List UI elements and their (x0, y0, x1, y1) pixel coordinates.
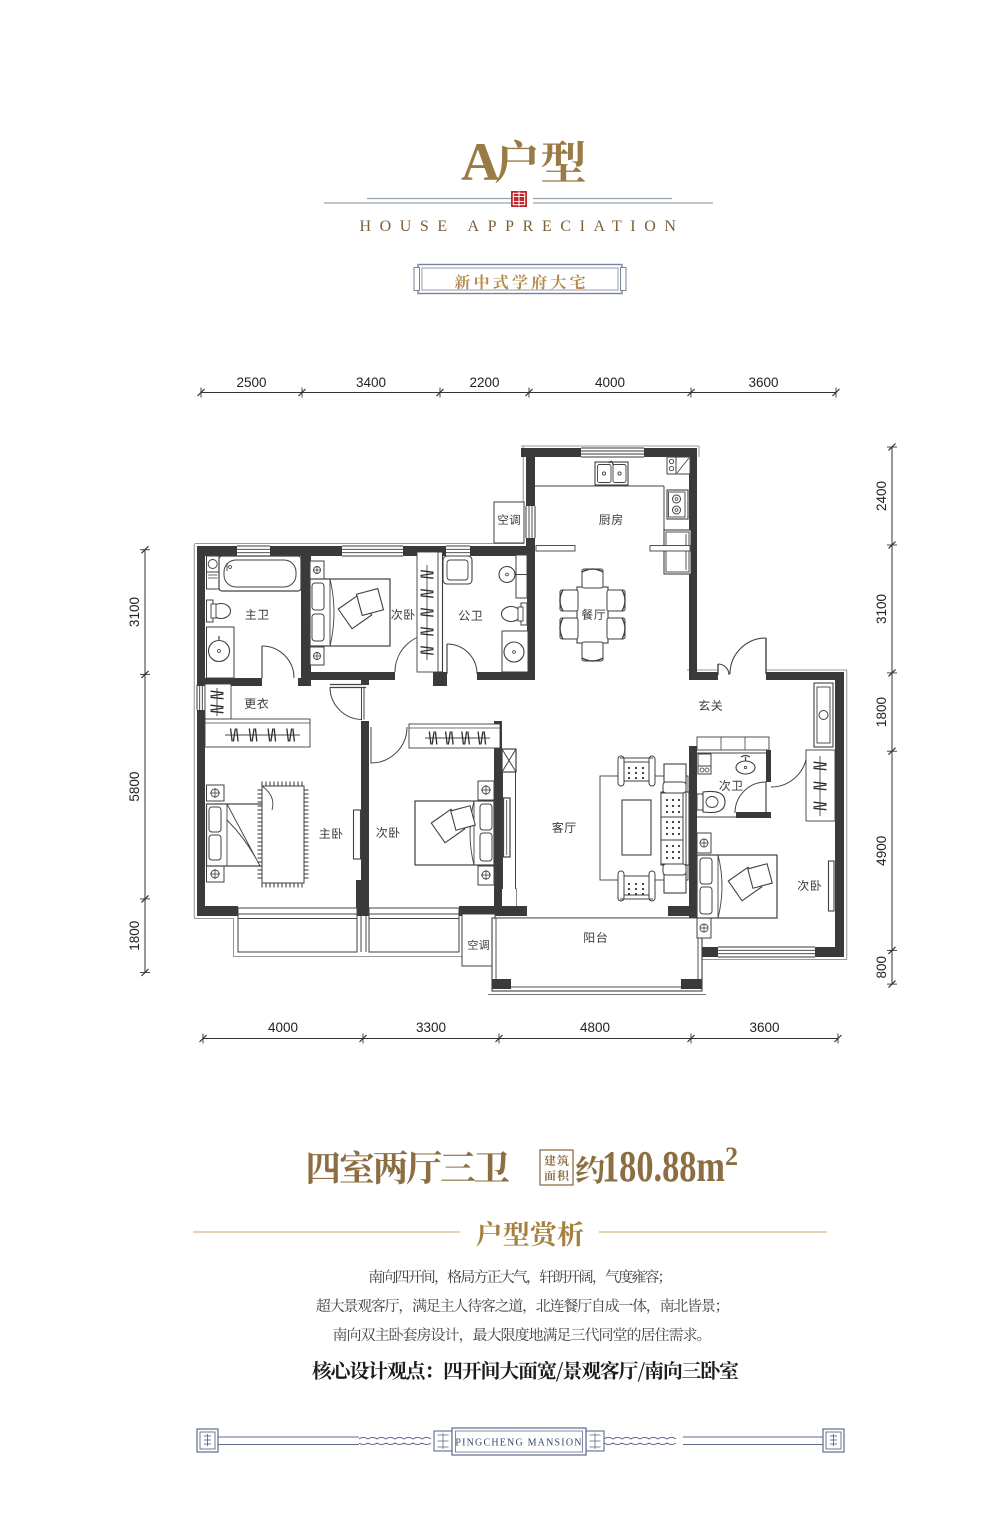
svg-text:2200: 2200 (469, 375, 499, 390)
svg-text:2500: 2500 (236, 375, 266, 390)
svg-text:180.88m: 180.88m (602, 1142, 725, 1191)
svg-text:3400: 3400 (356, 375, 386, 390)
svg-text:4900: 4900 (874, 836, 889, 866)
svg-text:3600: 3600 (748, 375, 778, 390)
svg-text:PINGCHENG MANSION: PINGCHENG MANSION (455, 1438, 582, 1449)
svg-text:3300: 3300 (416, 1020, 446, 1035)
svg-text:2400: 2400 (874, 481, 889, 511)
svg-text:HOUSE APPRECIATION: HOUSE APPRECIATION (359, 218, 684, 235)
svg-text:2: 2 (725, 1142, 738, 1171)
svg-text:4000: 4000 (595, 375, 625, 390)
svg-text:3100: 3100 (874, 594, 889, 624)
svg-text:800: 800 (874, 956, 889, 979)
svg-text:4800: 4800 (580, 1020, 610, 1035)
svg-text:1800: 1800 (874, 697, 889, 727)
svg-text:3600: 3600 (749, 1020, 779, 1035)
svg-text:1800: 1800 (127, 921, 142, 951)
svg-text:3100: 3100 (127, 597, 142, 627)
svg-text:5800: 5800 (127, 772, 142, 802)
svg-text:A: A (461, 132, 500, 192)
svg-text:4000: 4000 (268, 1020, 298, 1035)
